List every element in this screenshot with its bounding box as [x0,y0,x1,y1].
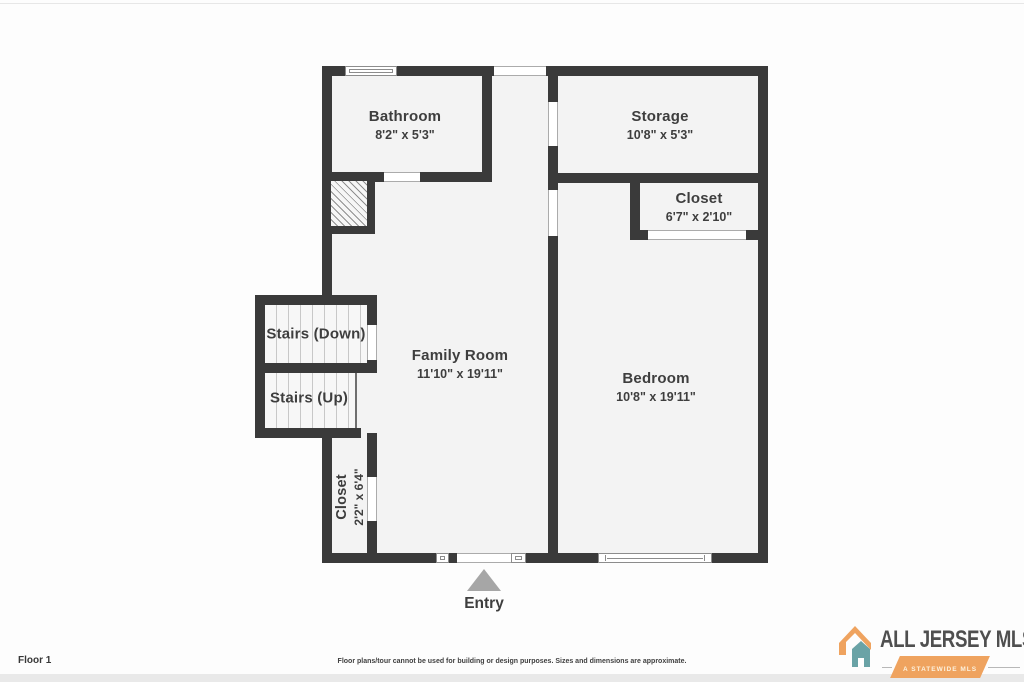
window-cap [704,555,705,561]
door-opening [367,477,377,521]
room-name: Bedroom [616,370,696,387]
stairs-edge-line [355,373,357,428]
wall [255,428,361,438]
room-dims: 10'8" x 5'3" [627,128,693,142]
room-label-bedroom: Bedroom 10'8" x 19'11" [616,370,696,404]
window-sash [349,69,393,73]
wall-opening [494,66,546,76]
tagline-banner: A STATEWIDE MLS [895,656,985,678]
room-dims: 11'10" x 19'11" [412,367,508,381]
wall [548,173,768,183]
window-symbol [345,66,397,76]
door-opening [384,172,420,182]
room-label-stairs-up: Stairs (Up) [270,390,348,407]
entry-label: Entry [464,595,504,613]
room-name: Stairs (Up) [270,390,348,407]
door-opening [648,230,746,240]
wall [630,230,648,240]
room-label-closet-right: Closet 6'7" x 2'10" [666,190,732,224]
room-name: Storage [627,108,693,125]
room-dims: 2'2" x 6'4" [352,468,366,525]
room-name: Family Room [412,347,508,364]
room-name: Closet [666,190,732,207]
room-dims: 8'2" x 5'3" [369,128,441,142]
wall [526,553,598,563]
door-opening [548,190,558,236]
room-label-family-room: Family Room 11'10" x 19'11" [412,347,508,381]
room-label-bathroom: Bathroom 8'2" x 5'3" [369,108,441,142]
tagline-text: A STATEWIDE MLS [903,666,977,673]
window-symbol [436,553,449,563]
wall [746,230,758,240]
wall [420,172,492,182]
window-sash [515,556,522,560]
floorplan-canvas: Bathroom 8'2" x 5'3" Storage 10'8" x 5'3… [0,0,1024,682]
wall [367,433,377,477]
logo-text: ALL JERSEY MLS [880,626,1024,654]
page-border-line [0,3,1024,4]
wall [548,236,558,563]
window-sash [440,556,445,560]
room-dims: 10'8" x 19'11" [616,390,696,404]
wall [758,66,768,563]
wall [255,363,377,373]
room-label-stairs-down: Stairs (Down) [266,326,365,343]
wall [712,553,768,563]
wall [255,295,377,305]
all-jersey-mls-logo: ALL JERSEY MLS A STATEWIDE MLS [834,620,1020,676]
room-name: Bathroom [369,108,441,125]
logo-door-shape [858,658,864,667]
floor-label: Floor 1 [18,655,51,666]
wall [548,146,558,190]
chimney-hatch [331,181,367,226]
entry-arrow-icon [467,569,501,591]
room-name: Closet [334,468,350,525]
room-dims: 6'7" x 2'10" [666,210,732,224]
wall [630,183,640,231]
wall [367,295,377,325]
room-name: Stairs (Down) [266,326,365,343]
door-opening [548,102,558,146]
entry-door-opening [457,553,511,563]
stairs-opening [367,325,377,360]
wall [548,66,558,102]
window-symbol [511,553,526,563]
tagline-rule-left [882,667,892,668]
wall [482,66,492,182]
wall [322,553,436,563]
wall [449,553,457,563]
room-label-storage: Storage 10'8" x 5'3" [627,108,693,142]
wall [322,437,332,563]
house-logo-icon [836,622,876,670]
room-label-closet-left: Closet 2'2" x 6'4" [334,468,366,525]
tagline-rule-right [988,667,1020,668]
logo-tagline: A STATEWIDE MLS [882,656,1020,678]
window-symbol [598,553,712,563]
wall [367,521,377,563]
disclaimer-text: Floor plans/tour cannot be used for buil… [338,658,687,665]
